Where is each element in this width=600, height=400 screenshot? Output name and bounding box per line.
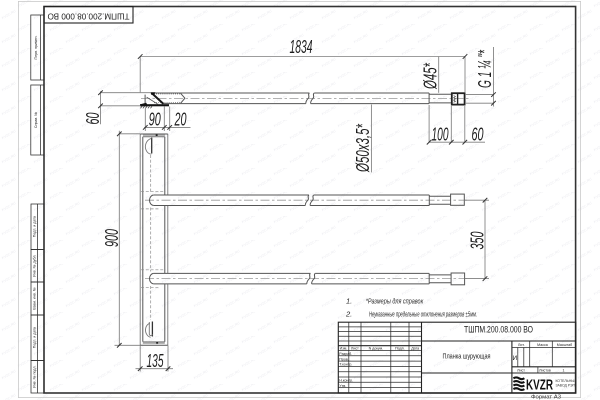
svg-text:Т.контр.: Т.контр. xyxy=(339,363,352,367)
svg-text:Ø45*: Ø45* xyxy=(421,62,441,89)
svg-text:И: И xyxy=(512,355,517,362)
svg-text:Подп.: Подп. xyxy=(395,347,405,351)
svg-text:60: 60 xyxy=(472,124,484,144)
svg-text:100: 100 xyxy=(432,124,449,144)
svg-text:ТШПМ.200.08.000 ВО: ТШПМ.200.08.000 ВО xyxy=(48,11,130,20)
svg-text:Масса: Масса xyxy=(537,343,548,347)
svg-text:Утв.: Утв. xyxy=(339,384,346,388)
svg-text:Дата: Дата xyxy=(411,347,419,351)
svg-text:1834: 1834 xyxy=(290,37,313,57)
svg-text:ЗАВОД РЭП: ЗАВОД РЭП xyxy=(556,384,576,388)
svg-text:КОТЕЛЬНЫЙ: КОТЕЛЬНЫЙ xyxy=(556,379,578,383)
svg-text:Лит.: Лит. xyxy=(518,343,525,347)
svg-text:Ø50x3,5*: Ø50x3,5* xyxy=(353,123,373,172)
svg-text:1.: 1. xyxy=(346,297,352,306)
svg-text:Лист: Лист xyxy=(351,347,359,351)
svg-text:135: 135 xyxy=(147,351,165,371)
svg-text:900: 900 xyxy=(102,229,122,247)
svg-text:Формат А3: Формат А3 xyxy=(531,395,561,400)
svg-text:Инв. № дубл.: Инв. № дубл. xyxy=(32,255,36,277)
svg-text:KVZR: KVZR xyxy=(526,378,553,394)
svg-text:Масштаб: Масштаб xyxy=(557,343,572,347)
svg-text:Разраб.: Разраб. xyxy=(339,352,352,356)
svg-text:Планка шурующая: Планка шурующая xyxy=(443,352,491,361)
svg-text:350: 350 xyxy=(468,232,488,250)
svg-text:Изм.: Изм. xyxy=(340,347,348,351)
svg-text:90: 90 xyxy=(149,110,161,130)
svg-text:*Размеры для справок: *Размеры для справок xyxy=(366,297,424,306)
svg-text:Подп. и дата: Подп. и дата xyxy=(32,216,36,237)
svg-text:Взам. инв. №: Взам. инв. № xyxy=(32,287,36,309)
svg-text:Лист: Лист xyxy=(517,369,525,373)
svg-text:N докум.: N докум. xyxy=(369,347,384,351)
svg-text:ТШПМ.200.08.000 ВО: ТШПМ.200.08.000 ВО xyxy=(464,325,533,335)
svg-text:2.: 2. xyxy=(345,310,352,319)
svg-text:1: 1 xyxy=(563,369,565,373)
svg-text:Листов: Листов xyxy=(539,369,551,373)
svg-text:Н.контр.: Н.контр. xyxy=(339,379,353,383)
svg-text:Перв. примен.: Перв. примен. xyxy=(34,36,38,60)
svg-text:Подп. и дата: Подп. и дата xyxy=(32,327,36,348)
svg-text:60: 60 xyxy=(83,113,103,125)
svg-text:Инв. № подл.: Инв. № подл. xyxy=(32,366,36,388)
svg-text:Неуказанные предельные отклоне: Неуказанные предельные отклонения размер… xyxy=(369,310,477,319)
svg-text:20: 20 xyxy=(174,110,187,130)
svg-text:G 1 ¼ "*: G 1 ¼ "* xyxy=(475,49,495,88)
svg-text:Пров.: Пров. xyxy=(339,357,349,361)
svg-text:Справ. №: Справ. № xyxy=(34,112,38,128)
